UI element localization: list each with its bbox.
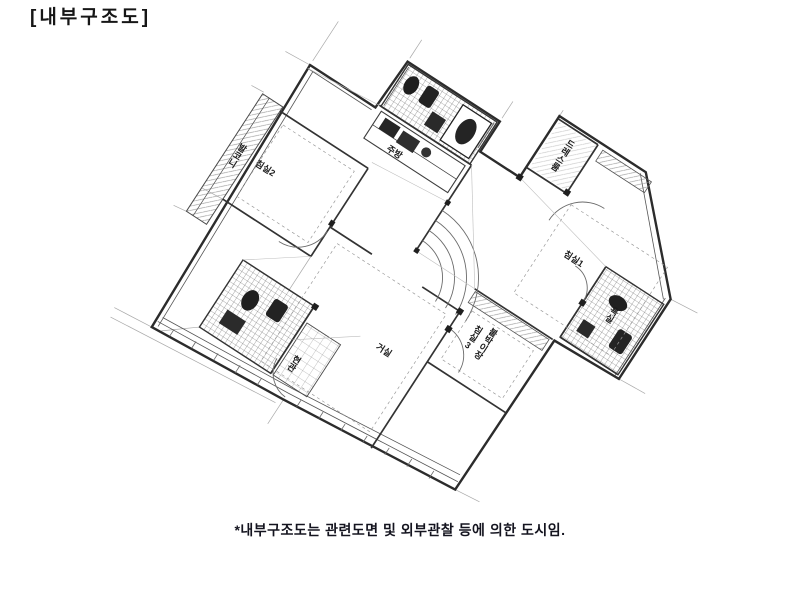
footnote: *내부구조도는 관련도면 및 외부관찰 등에 의한 도시임. (0, 520, 800, 540)
page: { "header": { "title": "[내부구조도]" }, "foo… (0, 0, 800, 564)
document-canvas: [내부구조도] (0, 0, 800, 564)
floor-plan: 침실2 발코니 주방 드레스룸 침실1 거실 붙박이장 침실3 욕실 현관 (97, 0, 767, 603)
page-title: [내부구조도] (30, 2, 151, 29)
floor-plan-drawing (97, 0, 767, 603)
